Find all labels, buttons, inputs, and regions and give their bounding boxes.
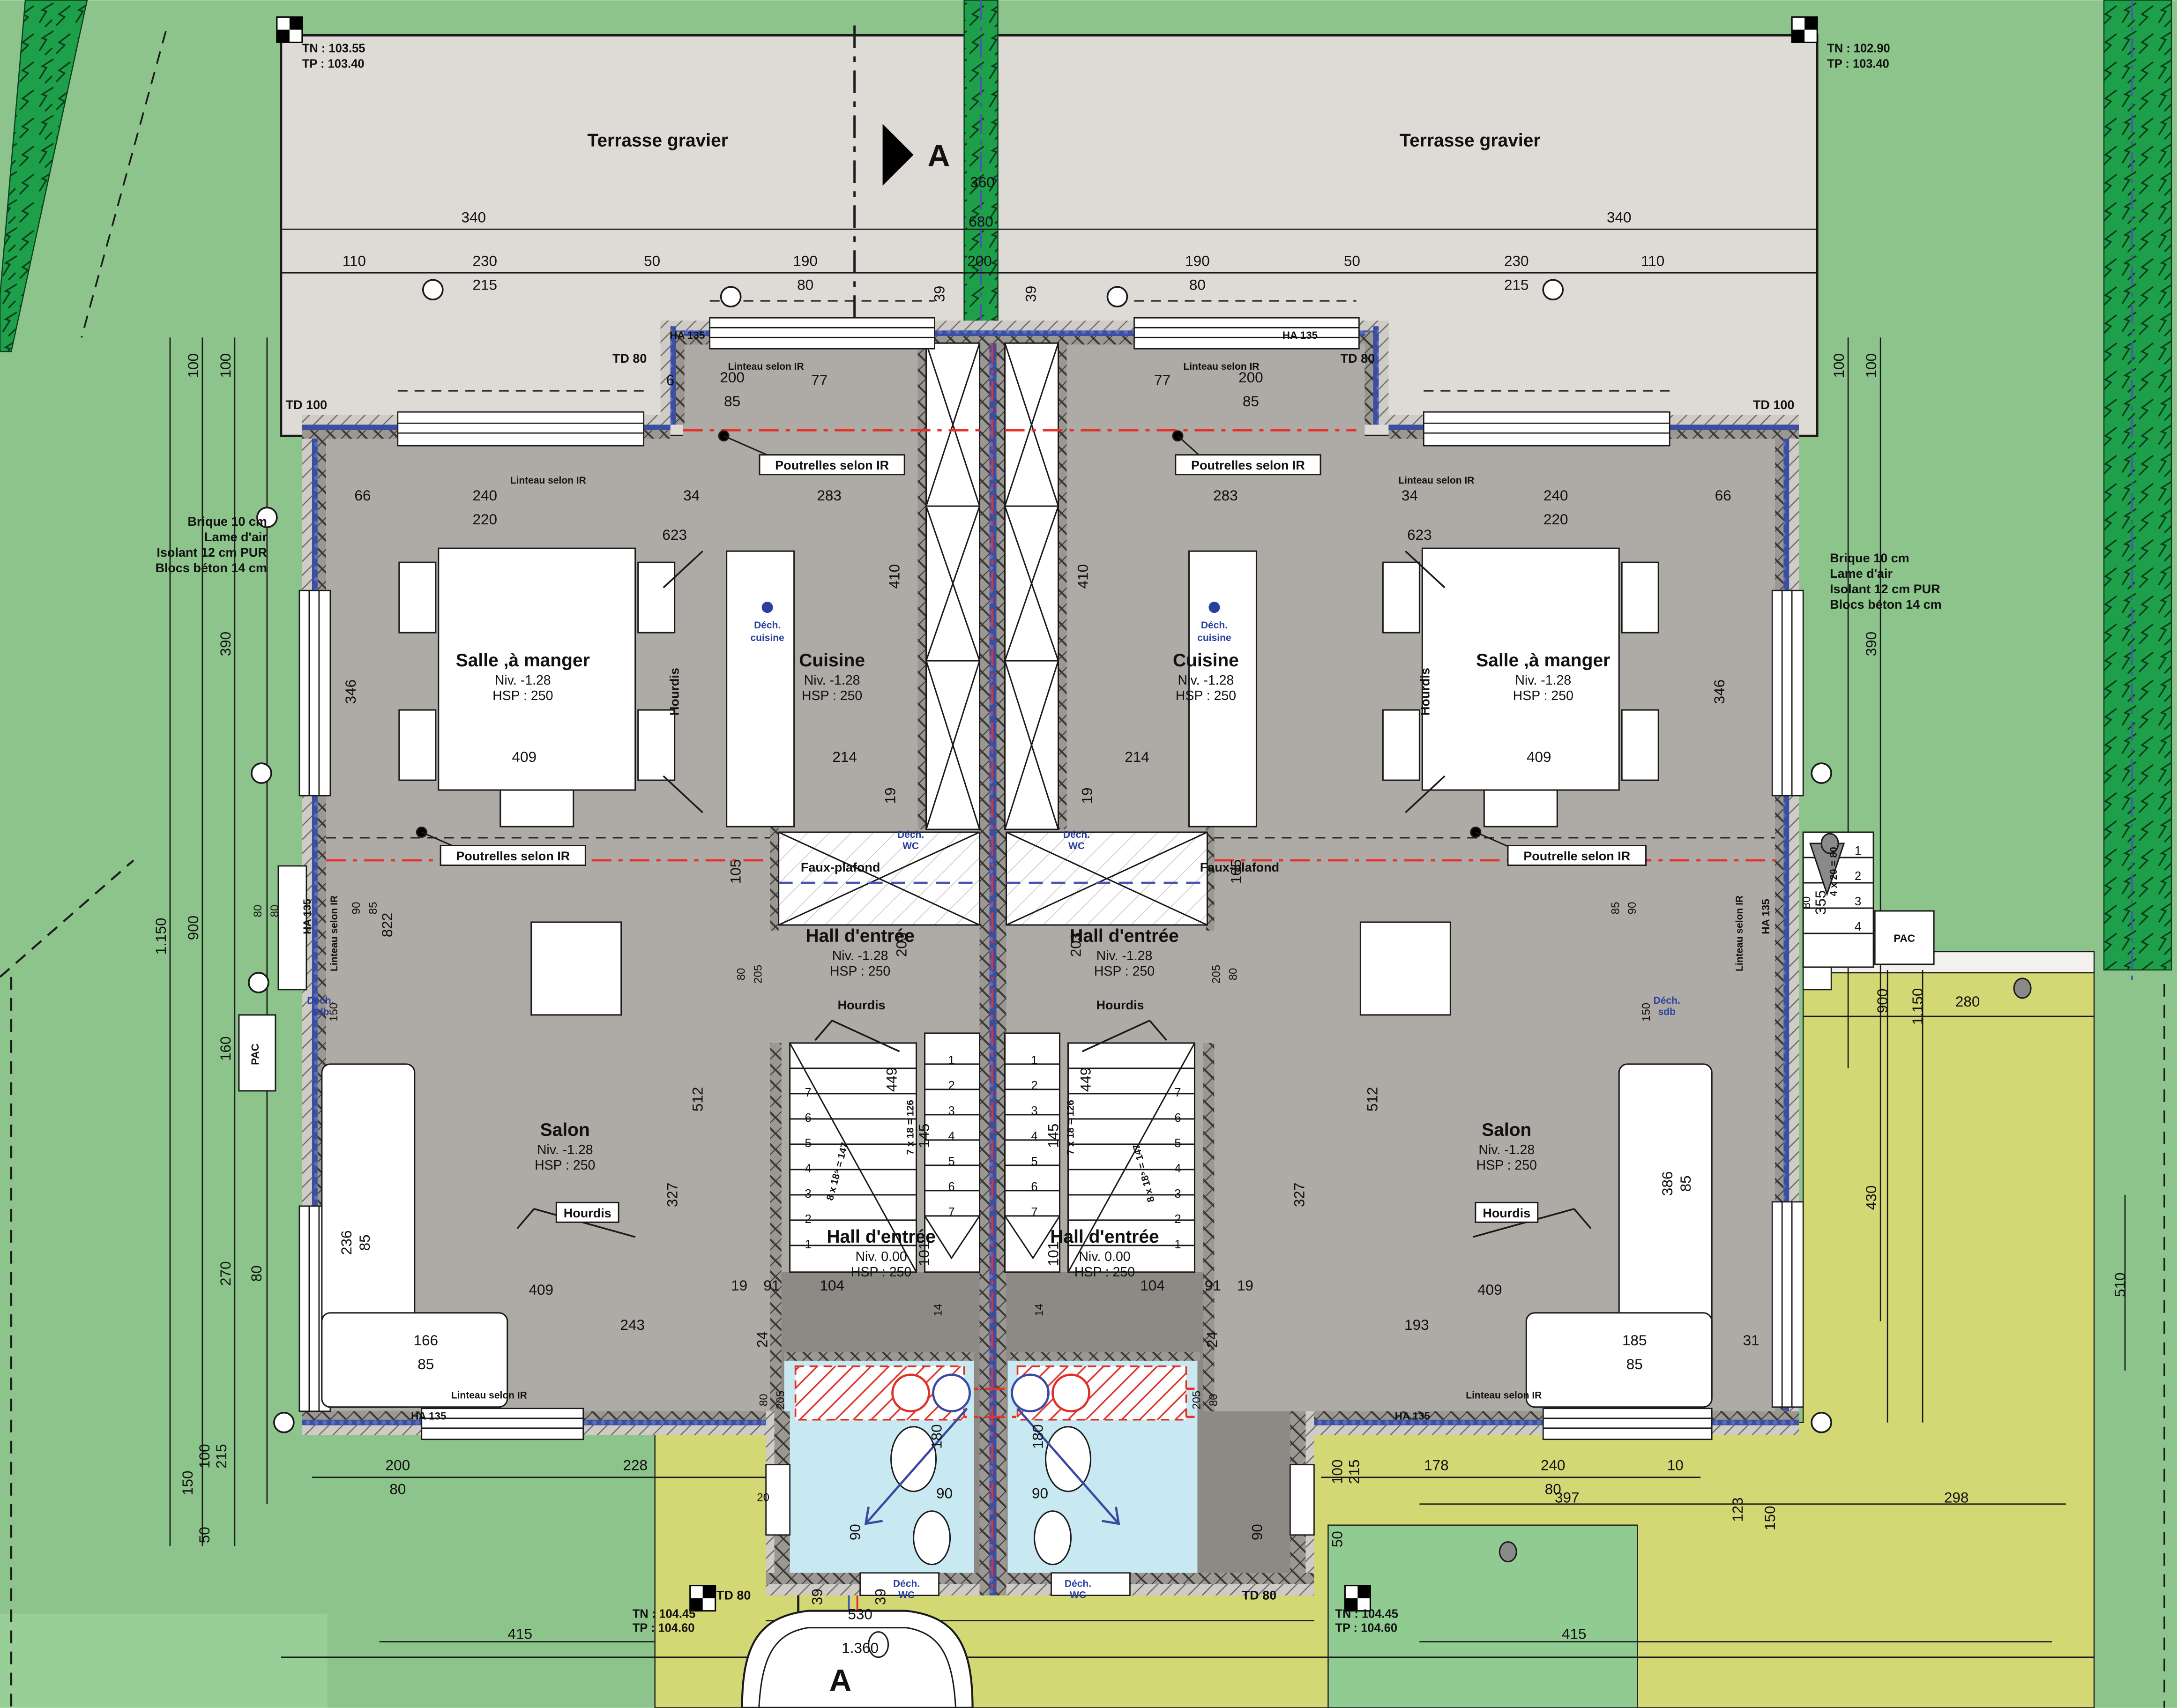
annotation-text: 90 [350,902,363,915]
annotation-text: Hourdis [668,668,682,716]
stair-tread-number: 3 [1855,895,1861,908]
annotation-text: 340 [1607,209,1632,225]
washbasin-right [1046,1427,1091,1492]
annotation-text: 100 [196,1444,213,1469]
stair-tread-number: 5 [805,1137,812,1150]
annotation-text: 449 [1077,1067,1094,1092]
annotation-text: 145 [1045,1124,1062,1149]
annotation-text: Déch. [1654,995,1680,1006]
annotation-text: 200 [720,369,745,386]
annotation-text: TD 100 [286,398,328,412]
annotation-text: 7 x 18 = 126 [905,1100,916,1155]
annotation-text: HA 135 [411,1410,446,1422]
annotation-text: 200 [1238,369,1263,386]
annotation-text: TN : 103.55 [302,42,365,55]
annotation-text: 110 [1641,252,1664,269]
annotation-text: 6 [666,372,675,388]
stair-tread-number: 4 [1174,1162,1181,1175]
annotation-text: 178 [1424,1457,1449,1474]
annotation-text: 228 [623,1457,648,1474]
stair-tread-number: 2 [1855,870,1861,883]
annotation-text: HSP : 250 [802,688,862,703]
annotation-text: 91 [1205,1277,1221,1294]
stair-tread-number: 3 [1174,1187,1181,1201]
annotation-text: 105 [727,859,744,884]
window-north-left [398,412,644,446]
annotation-text: Salon [1482,1120,1531,1140]
annotation-text: PAC [1894,932,1915,944]
annotation-text: 327 [1290,1183,1307,1208]
annotation-text: Lame d'air [204,530,267,544]
annotation-text: 190 [1185,252,1210,269]
lawn-strip [0,1614,328,1708]
annotation-text: 623 [1407,526,1432,543]
annotation-text: 50 [644,252,660,269]
annotation-text: 390 [217,632,234,656]
annotation-text: 39 [809,1589,826,1605]
annotation-text: 327 [664,1183,681,1208]
annotation-text: 80 [1800,896,1813,909]
annotation-text: 90 [1248,1524,1265,1540]
floor-plan-page: Plan rez-de-chaussée — maison jumelée [0,0,2177,1708]
annotation-text: 34 [683,487,700,504]
stair-tread-number: 4 [1031,1130,1037,1143]
annotation-text: Déch. [893,1579,920,1589]
annotation-text: HSP : 250 [1476,1158,1537,1173]
annotation-text: Niv. -1.28 [804,673,860,688]
window-east-dining [1772,590,1803,796]
annotation-text: TD 100 [1753,398,1795,412]
annotation-text: 205 [1210,965,1223,984]
annotation-text: 50 [1328,1531,1345,1547]
annotation-text: 512 [1364,1087,1380,1112]
stair-tread-number: 1 [948,1054,954,1067]
dech-cuisine-point-right [1208,602,1220,613]
annotation-text: 66 [1715,487,1731,504]
annotation-text: Niv. 0.00 [1079,1249,1130,1264]
annotation-text: Linteau selon IR [1466,1390,1542,1401]
annotation-text: 205 [752,965,765,984]
annotation-text: 100 [1328,1459,1345,1484]
annotation-text: 166 [414,1332,439,1349]
annotation-text: HSP : 250 [1074,1265,1135,1280]
pipe-red-right [1053,1375,1089,1411]
annotation-text: 283 [817,487,842,504]
annotation-text: WC [1070,1590,1086,1601]
annotation-text: Brique 10 cm [1830,551,1909,565]
annotation-text: 110 [343,252,366,269]
annotation-text: 20 [757,1492,769,1504]
annotation-text: HSP : 250 [1094,964,1155,979]
stair-tread-number: 7 [805,1086,812,1099]
annotation-text: 214 [1125,748,1149,765]
window-east-salon [1772,1202,1803,1407]
annotation-text: Hourdis [1483,1206,1530,1220]
annotation-text: 449 [883,1067,900,1092]
annotation-text: 39 [931,286,948,302]
annotation-text: 150 [179,1470,196,1495]
annotation-text: Faux-plafond [801,860,880,874]
annotation-text: 190 [793,252,818,269]
annotation-text: HSP : 250 [535,1158,595,1173]
annotation-text: 19 [731,1277,747,1294]
annotation-text: sdb [312,1007,329,1017]
toilet-left [914,1511,950,1565]
annotation-text: 510 [2111,1273,2128,1298]
annotation-text: Hourdis [564,1206,611,1220]
annotation-text: 390 [1863,632,1879,656]
annotation-text: 91 [763,1277,780,1294]
stair-tread-number: 6 [948,1180,954,1193]
annotation-text: 680 [969,213,993,230]
annotation-text: 193 [1404,1316,1429,1333]
annotation-text: 85 [418,1356,434,1372]
annotation-text: Poutrelles selon IR [775,458,889,472]
annotation-text: PAC [249,1044,261,1065]
annotation-text: Blocs béton 14 cm [155,561,267,575]
annotation-text: sdb [1658,1007,1676,1017]
annotation-text: 14 [932,1304,945,1316]
annotation-text: 340 [462,209,486,225]
annotation-text: 90 [1626,902,1639,915]
annotation-text: 85 [1626,1356,1643,1372]
annotation-text: 180 [1029,1424,1046,1449]
annotation-text: 215 [1345,1459,1362,1484]
stair-tread-number: 3 [805,1187,812,1201]
annotation-text: 85 [356,1234,373,1251]
annotation-text: 180 [928,1424,945,1449]
annotation-text: 205 [1190,1391,1203,1410]
annotation-text: Hourdis [1096,998,1144,1012]
table-hall-right [1360,922,1450,1015]
annotation-text: 298 [1944,1489,1969,1506]
annotation-text: 80 [735,968,748,981]
annotation-text: TD 80 [612,351,647,365]
annotation-text: Lame d'air [1830,567,1893,581]
annotation-text: 80 [268,905,281,917]
annotation-text: Salon [540,1120,590,1140]
annotation-text: Niv. 0.00 [855,1249,907,1264]
stair-tread-number: 5 [1174,1137,1181,1150]
kitchen-counter-left [727,551,794,827]
annotation-text: Hourdis [838,998,886,1012]
annotation-text: 822 [379,913,395,938]
annotation-text: Hall d'entrée [827,1227,935,1247]
pipe-blue-right [1012,1375,1049,1411]
annotation-text: 409 [1477,1281,1502,1298]
vent-shaft-left [926,343,980,829]
annotation-text: 150 [328,1003,340,1022]
annotation-text: A [829,1663,852,1698]
annotation-text: TP : 104.60 [633,1622,695,1635]
annotation-text: 85 [1609,902,1622,915]
annotation-text: 243 [620,1316,645,1333]
annotation-text: Hall d'entrée [1070,926,1178,946]
annotation-text: WC [902,841,919,851]
annotation-text: 215 [473,276,498,293]
annotation-text: 512 [689,1087,706,1112]
annotation-text: 240 [1541,1457,1566,1474]
annotation-text: 66 [354,487,371,504]
annotation-text: 80 [1227,968,1239,981]
stair-tread-number: 4 [948,1130,954,1143]
window-kitchen-left [710,318,935,349]
stair-tread-number: 1 [1174,1238,1181,1251]
annotation-text: 200 [386,1457,410,1474]
annotation-text: 430 [1863,1186,1879,1210]
annotation-text: 236 [338,1231,355,1255]
annotation-text: Terrasse gravier [1400,130,1541,150]
vent-shaft-right [1005,343,1059,829]
annotation-text: 80 [758,1394,770,1406]
annotation-text: 14 [1033,1304,1046,1316]
annotation-text: Terrasse gravier [587,130,728,150]
annotation-text: Déch. [1065,1579,1091,1589]
annotation-text: 50 [1344,252,1360,269]
door-porch-east [1290,1465,1314,1535]
annotation-text: Niv. -1.28 [1478,1142,1535,1157]
annotation-text: Isolant 12 cm PUR [1830,582,1940,596]
annotation-text: 220 [1543,511,1568,528]
annotation-text: Linteau selon IR [1398,475,1474,486]
annotation-text: WC [1068,841,1085,851]
annotation-text: 85 [1677,1175,1694,1192]
annotation-text: 280 [1955,993,1980,1010]
annotation-text: Poutrelles selon IR [456,849,570,863]
door-porch-west [766,1465,790,1535]
annotation-text: Niv. -1.28 [832,948,888,963]
annotation-text: 100 [185,353,201,378]
stair-tread-number: 6 [1174,1111,1181,1125]
annotation-text: 409 [1527,748,1551,765]
annotation-text: 145 [916,1124,932,1149]
annotation-text: HSP : 250 [830,964,890,979]
annotation-text: TN : 102.90 [1827,42,1890,55]
pipe-blue-left [933,1375,970,1411]
annotation-text: HSP : 250 [492,688,553,703]
stair-tread-number: 2 [948,1079,954,1092]
annotation-text: Hall d'entrée [805,926,914,946]
annotation-text: 34 [1402,487,1418,504]
annotation-text: 220 [473,511,498,528]
car [742,1611,973,1708]
annotation-text: HA 135 [1282,329,1318,341]
annotation-text: Niv. -1.28 [1096,948,1153,963]
annotation-text: 240 [473,487,498,504]
annotation-text: 230 [473,252,498,269]
annotation-text: Cuisine [1173,650,1239,671]
annotation-text: 1.150 [152,918,169,955]
annotation-text: 386 [1659,1171,1676,1196]
annotation-text: 410 [886,564,903,589]
stair-tread-number: 7 [948,1206,954,1219]
annotation-text: 240 [1543,487,1568,504]
annotation-text: Poutrelle selon IR [1523,849,1630,863]
annotation-text: 90 [847,1524,864,1540]
annotation-text: Cuisine [799,650,865,671]
stair-tread-number: 1 [1031,1054,1037,1067]
annotation-text: TP : 103.40 [302,57,365,70]
annotation-text: 24 [754,1331,771,1348]
annotation-text: 50 [196,1527,213,1543]
annotation-text: HA 135 [670,329,705,341]
annotation-text: Linteau selon IR [451,1390,527,1401]
annotation-text: 10 [1667,1457,1684,1474]
annotation-text: 415 [1562,1626,1587,1642]
stair-tread-number: 5 [948,1155,954,1168]
annotation-text: Niv. -1.28 [495,673,551,688]
annotation-text: Salle ,à manger [456,650,590,671]
annotation-text: 85 [367,902,380,915]
annotation-text: 80 [1189,276,1206,293]
pipe-red-left [893,1375,929,1411]
annotation-text: TP : 103.40 [1827,57,1889,70]
annotation-text: 346 [1711,679,1728,704]
annotation-text: 530 [848,1606,872,1623]
annotation-text: 230 [1504,252,1529,269]
annotation-text: 77 [811,372,828,388]
annotation-text: Niv. -1.28 [1515,673,1571,688]
annotation-text: 360 [970,173,995,190]
annotation-text: Hall d'entrée [1050,1227,1159,1247]
stair-tread-number: 1 [1855,844,1861,858]
annotation-text: TD 80 [716,1589,751,1603]
annotation-text: 205 [775,1391,787,1410]
table-hall-left [531,922,621,1015]
annotation-text: 215 [213,1444,230,1469]
annotation-text: 100 [1863,353,1879,378]
annotation-text: 80 [797,276,813,293]
stair-tread-number: 1 [805,1238,812,1251]
annotation-text: 200 [967,252,992,269]
annotation-text: Linteau selon IR [510,475,586,486]
annotation-text: 39 [1022,286,1039,302]
annotation-text: 105 [1227,859,1244,884]
annotation-text: 90 [936,1485,953,1502]
annotation-text: 39 [872,1589,889,1605]
annotation-text: 160 [217,1037,234,1061]
annotation-text: 346 [342,679,359,704]
annotation-text: Isolant 12 cm PUR [157,545,267,559]
annotation-text: 85 [724,393,740,410]
annotation-text: 85 [1243,393,1259,410]
floor-plan-drawing: Plan rez-de-chaussée — maison jumelée [0,0,2177,1708]
annotation-text: TN : 104.45 [633,1608,696,1621]
annotation-text: 214 [832,748,857,765]
annotation-text: 415 [507,1626,532,1642]
stair-tread-number: 4 [1855,920,1861,933]
annotation-text: 19 [1078,788,1095,804]
stair-tread-number: 5 [1031,1155,1037,1168]
annotation-text: 80 [252,905,264,917]
annotation-text: 283 [1213,487,1238,504]
annotation-text: 100 [217,353,234,378]
annotation-text: 80 [1207,1394,1220,1406]
annotation-text: Déch. [1201,620,1228,631]
toilet-right [1035,1511,1071,1565]
annotation-text: Déch. [1063,829,1090,840]
annotation-text: 7 x 18 = 126 [1066,1100,1076,1155]
marker-oval [1499,1542,1516,1562]
annotation-text: TN : 104.45 [1335,1608,1398,1621]
annotation-text: HA 135 [1760,899,1772,934]
annotation-text: 397 [1555,1489,1580,1506]
annotation-text: 80 [248,1265,265,1282]
annotation-text: HSP : 250 [1176,688,1236,703]
annotation-text: Poutrelles selon IR [1191,458,1305,472]
stair-tread-number: 7 [1031,1206,1037,1219]
window-west-dining [299,590,330,796]
annotation-text: TD 80 [1242,1589,1276,1603]
annotation-text: Hourdis [1418,668,1432,716]
annotation-text: A [928,138,950,172]
stair-tread-number: 2 [1031,1079,1037,1092]
window-south-right [1543,1409,1712,1439]
annotation-text: cuisine [1197,633,1231,643]
annotation-text: 409 [529,1281,553,1298]
annotation-text: Déch. [754,620,781,631]
annotation-text: 1.360 [842,1640,879,1656]
annotation-text: 80 [389,1481,406,1498]
annotation-text: Linteau selon IR [329,895,340,971]
annotation-text: 123 [1729,1497,1746,1522]
annotation-text: 104 [820,1277,844,1294]
annotation-text: Déch. [897,829,924,840]
annotation-text: 90 [1032,1485,1048,1502]
annotation-text: HA 135 [301,899,313,934]
stair-tread-number: 6 [805,1111,812,1125]
annotation-text: 1.150 [1909,988,1926,1025]
window-north-right [1424,412,1670,446]
annotation-text: Niv. -1.28 [1178,673,1234,688]
annotation-text: 19 [882,788,899,804]
annotation-text: HSP : 250 [1513,688,1573,703]
annotation-text: Salle ,à manger [1476,650,1610,671]
annotation-text: 215 [1504,276,1529,293]
annotation-text: 77 [1154,372,1171,388]
annotation-text: Linteau selon IR [1734,895,1745,971]
annotation-text: Niv. -1.28 [537,1142,593,1157]
annotation-text: 4 x 20 = 80 [1828,847,1839,896]
annotation-text: TD 80 [1341,351,1375,365]
annotation-text: cuisine [750,633,784,643]
annotation-text: 150 [1640,1003,1653,1022]
hedge-right [2104,0,2171,970]
annotation-text: 100 [1830,353,1847,378]
annotation-text: 24 [1203,1331,1220,1348]
stair-tread-number: 3 [1031,1104,1037,1118]
annotation-text: 150 [1761,1506,1778,1530]
dech-cuisine-point-left [762,602,773,613]
annotation-text: 185 [1622,1332,1647,1349]
annotation-text: 104 [1140,1277,1165,1294]
annotation-text: TP : 104.60 [1335,1622,1397,1635]
annotation-text: HA 135 [1395,1410,1430,1422]
annotation-text: 270 [217,1261,234,1286]
stair-tread-number: 2 [1174,1213,1181,1226]
annotation-text: 19 [1237,1277,1253,1294]
annotation-text: HSP : 250 [851,1265,911,1280]
annotation-text: 409 [512,748,537,765]
annotation-text: Blocs béton 14 cm [1830,597,1941,612]
annotation-text: WC [898,1590,915,1601]
stair-tread-number: 6 [1031,1180,1037,1193]
annotation-text: Brique 10 cm [187,515,267,529]
stair-tread-number: 7 [1174,1086,1181,1099]
annotation-text: 900 [185,916,201,940]
stair-tread-number: 4 [805,1162,812,1175]
annotation-text: 410 [1074,564,1091,589]
